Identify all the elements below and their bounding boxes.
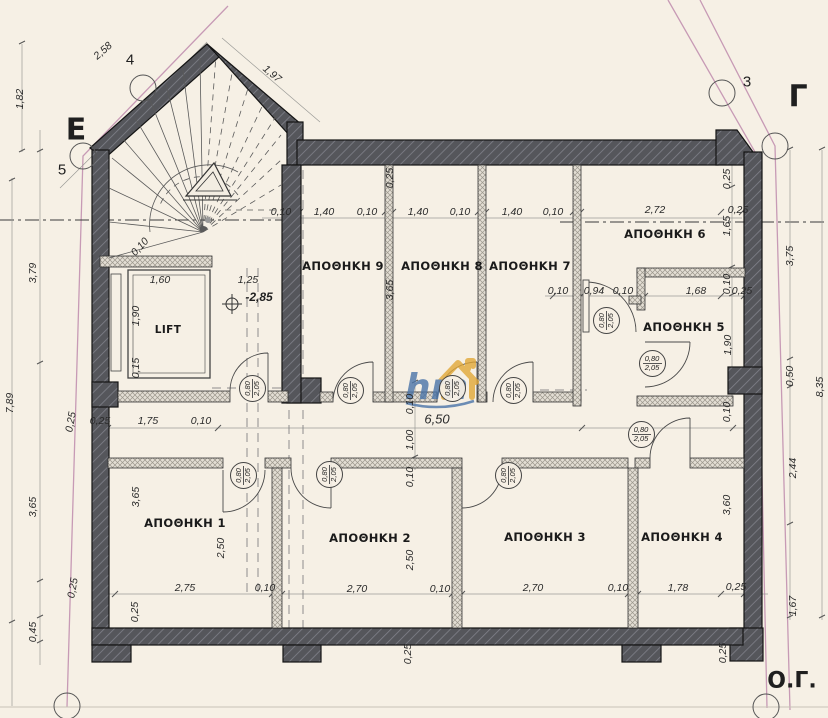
plan-marker-label: 4 [126, 52, 134, 69]
dimension-label: 0,10 [271, 206, 291, 218]
dimension-label: 1,68 [686, 285, 706, 297]
door-height-value: 2,05 [643, 363, 662, 372]
dimension-label: 0,10 [608, 582, 628, 594]
door-size-tag: 0,802,05 [495, 462, 522, 489]
dimension-label: 1,40 [408, 206, 428, 218]
dimension-label: 0,10 [191, 415, 211, 427]
dimension-label: 1,65 [721, 216, 733, 236]
dimension-label: 0,10 [255, 582, 275, 594]
dimension-label: 1,40 [314, 206, 334, 218]
door-width-value: 0,80 [342, 381, 350, 400]
dimension-label: 0,25 [402, 644, 414, 664]
dimension-label: 0,25 [732, 285, 752, 297]
dimension-label: 2,70 [523, 582, 543, 594]
dimension-label: 7,89 [4, 393, 16, 413]
dimension-label: 3,65 [130, 487, 142, 507]
door-size-tag: 0,802,05 [239, 375, 266, 402]
dimension-label: 2,75 [175, 582, 195, 594]
door-height-value: 2,05 [243, 466, 252, 485]
dimension-label: 2,70 [347, 583, 367, 595]
dimension-label: 0,10 [404, 394, 416, 414]
dimension-label: 3,60 [721, 495, 733, 515]
plan-marker-label: 3 [743, 74, 751, 91]
dimension-label: 0,25 [65, 577, 80, 599]
dimension-label: 0,25 [726, 581, 746, 593]
dimension-label: 0,25 [721, 169, 733, 189]
dimension-label: 1,90 [722, 335, 734, 355]
dimension-label: 6,50 [424, 412, 449, 427]
dimension-label: 0,94 [584, 285, 604, 297]
door-height-value: 2,05 [632, 434, 651, 443]
door-size-tag: 0,802,05 [439, 375, 466, 402]
dimension-label: 0,10 [430, 583, 450, 595]
door-width-value: 0,80 [598, 311, 606, 330]
door-size-tag: 0,802,05 [230, 462, 257, 489]
dimension-label: 1,00 [404, 430, 416, 450]
room-label: ΑΠΟΘΗΚΗ 3 [504, 530, 586, 544]
dimension-label: 0,10 [721, 402, 733, 422]
dimension-label: 3,65 [27, 497, 39, 517]
dimension-label: 0,25 [728, 204, 748, 216]
floor-plan: hm 2,581,971,820,100,101,400,101,400,101… [0, 0, 828, 718]
dimension-label: 1,90 [130, 306, 142, 326]
door-width-value: 0,80 [321, 465, 329, 484]
dimension-label: 1,40 [502, 206, 522, 218]
dimension-label: 2,72 [645, 204, 665, 216]
door-width-value: 0,80 [235, 466, 243, 485]
dimension-label: 1,75 [138, 415, 158, 427]
dimension-label: 1,67 [787, 596, 799, 616]
dimension-label: 0,10 [450, 206, 470, 218]
dimension-label: 0,10 [613, 285, 633, 297]
plan-marker-label: Ο.Γ. [767, 669, 816, 694]
room-label: LIFT [155, 324, 182, 336]
door-width-value: 0,80 [244, 379, 252, 398]
plan-marker-label: Γ [788, 80, 807, 115]
dimension-label: 0,15 [130, 358, 142, 378]
dimension-label: 0,10 [543, 206, 563, 218]
label-layer: 2,581,971,820,100,101,400,101,400,101,40… [0, 0, 828, 718]
dimension-label: 0,10 [357, 206, 377, 218]
door-width-value: 0,80 [505, 381, 513, 400]
dimension-label: 1,97 [260, 63, 283, 85]
dimension-label: 2,58 [91, 40, 114, 62]
plan-marker-label: Ε [66, 113, 87, 148]
door-height-value: 2,05 [350, 381, 359, 400]
door-height-value: 2,05 [452, 379, 461, 398]
door-size-tag: 0,802,05 [639, 350, 666, 377]
plan-marker-label: 5 [58, 162, 66, 179]
dimension-label: 2,44 [787, 458, 799, 478]
room-label: ΑΠΟΘΗΚΗ 2 [329, 531, 411, 545]
door-height-value: 2,05 [606, 311, 615, 330]
dimension-label: 0,10 [129, 235, 152, 258]
door-width-value: 0,80 [500, 466, 508, 485]
dimension-label: 8,35 [814, 377, 826, 397]
dimension-label: 1,60 [150, 274, 170, 286]
room-label: ΑΠΟΘΗΚΗ 7 [489, 259, 571, 273]
door-height-value: 2,05 [329, 465, 338, 484]
door-height-value: 2,05 [252, 379, 261, 398]
room-label: ΑΠΟΘΗΚΗ 5 [643, 320, 725, 334]
dimension-label: 3,75 [784, 246, 796, 266]
door-size-tag: 0,802,05 [337, 377, 364, 404]
door-width-value: 0,80 [444, 379, 452, 398]
door-size-tag: 0,802,05 [316, 461, 343, 488]
dimension-label: 3,65 [384, 280, 396, 300]
dimension-label: 0,25 [90, 415, 110, 427]
room-label: ΑΠΟΘΗΚΗ 1 [144, 516, 226, 530]
dimension-label: 2,50 [215, 538, 227, 558]
room-label: ΑΠΟΘΗΚΗ 6 [624, 227, 706, 241]
door-width-value: 0,80 [643, 355, 662, 363]
room-label: ΑΠΟΘΗΚΗ 4 [641, 530, 723, 544]
dimension-label: 0,10 [548, 285, 568, 297]
dimension-label: 1,25 [238, 274, 258, 286]
dimension-label: 2,50 [404, 550, 416, 570]
door-size-tag: 0,802,05 [593, 307, 620, 334]
dimension-label: 1,78 [668, 582, 688, 594]
level-marker-label: -2,85 [245, 290, 272, 304]
dimension-label: 3,79 [27, 263, 39, 283]
door-height-value: 2,05 [513, 381, 522, 400]
dimension-label: 0,25 [63, 411, 78, 433]
room-label: ΑΠΟΘΗΚΗ 8 [401, 259, 483, 273]
door-height-value: 2,05 [508, 466, 517, 485]
door-size-tag: 0,802,05 [500, 377, 527, 404]
dimension-label: 0,50 [784, 366, 796, 386]
door-width-value: 0,80 [632, 426, 651, 434]
dimension-label: 0,45 [27, 622, 39, 642]
dimension-label: 0,25 [384, 168, 396, 188]
room-label: ΑΠΟΘΗΚΗ 9 [302, 259, 384, 273]
dimension-label: 0,10 [404, 467, 416, 487]
dimension-label: 1,82 [14, 89, 26, 109]
dimension-label: 0,25 [129, 602, 141, 622]
door-size-tag: 0,802,05 [628, 421, 655, 448]
dimension-label: 0,25 [717, 643, 729, 663]
